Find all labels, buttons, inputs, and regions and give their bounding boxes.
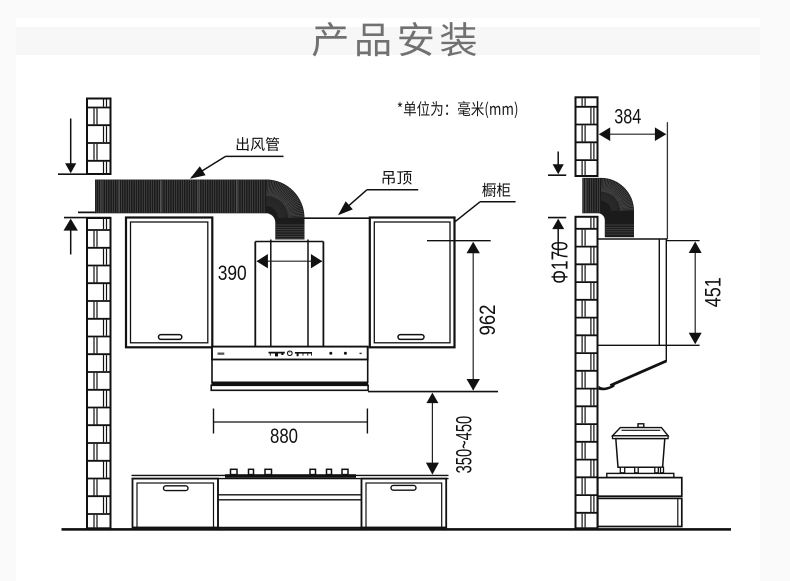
svg-text:384: 384 — [614, 104, 641, 128]
svg-text:962: 962 — [475, 305, 500, 336]
svg-text:Φ170: Φ170 — [547, 241, 573, 284]
svg-text:350~450: 350~450 — [452, 416, 477, 474]
svg-text:390: 390 — [218, 262, 247, 285]
svg-text:880: 880 — [270, 424, 298, 448]
svg-text:451: 451 — [701, 277, 726, 307]
